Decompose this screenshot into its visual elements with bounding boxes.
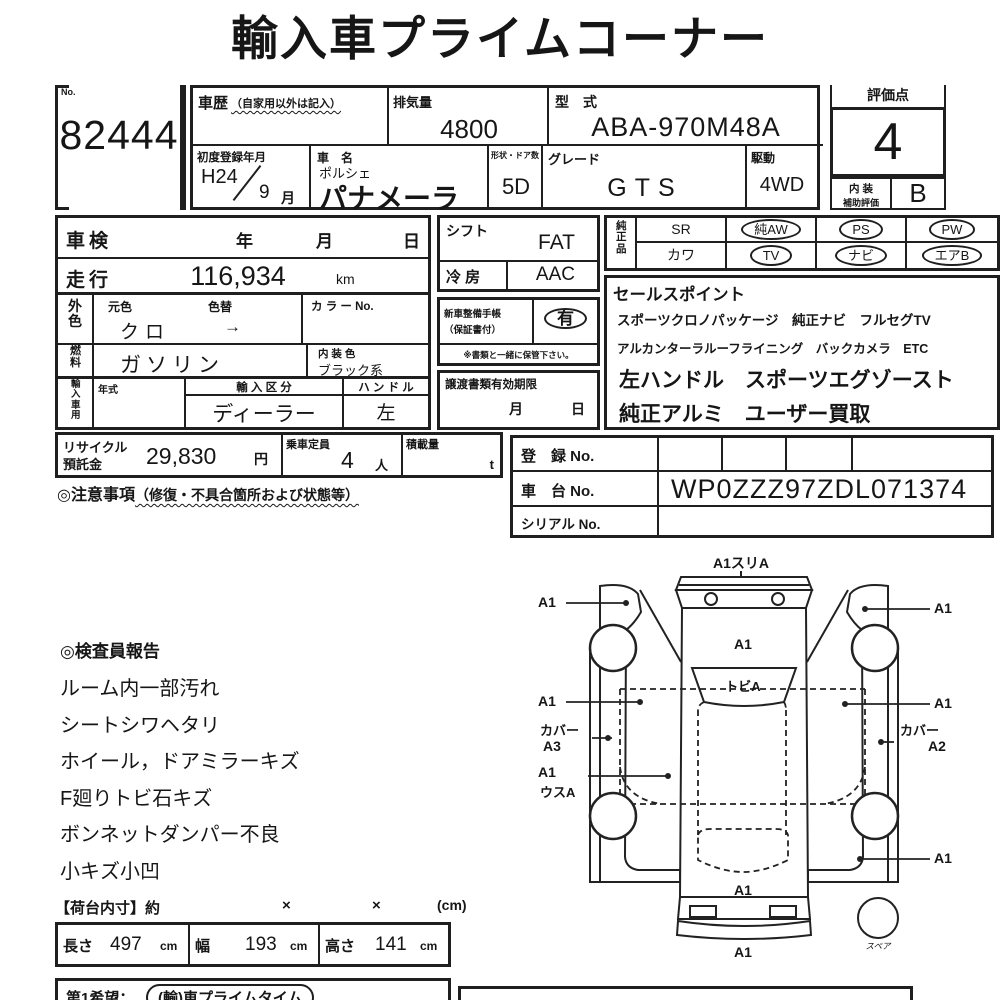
genuine-navi: ナビ: [835, 245, 887, 266]
body-right-edge: [806, 608, 808, 897]
cargo-length-unit: cm: [160, 939, 177, 953]
wheels: [590, 625, 898, 839]
service-book-note: ※書類と一緒に保管下さい。: [440, 343, 597, 363]
cargo-width-unit: cm: [290, 939, 307, 953]
ext-color-row: 外色 元色 色替 クロ → カ ラ ー No.: [58, 295, 428, 345]
shift-label: シフト: [446, 221, 488, 241]
chassis-no-label: 車 台 No.: [513, 472, 659, 505]
diagram-left-rear-code: ウスA: [540, 782, 575, 801]
cargo-width-label: 幅: [195, 935, 210, 956]
cargo-height-cell: 高さ 141 cm: [320, 925, 448, 964]
diagram-hood-label: A1: [713, 636, 773, 652]
cargo-width-cell: 幅 193 cm: [190, 925, 320, 964]
drive-value: 4WD: [747, 174, 817, 197]
reg-no-divider-1: [721, 438, 723, 470]
report-item-4: F廻りトビ石キズ: [60, 782, 212, 811]
wish-label: 第1希望：: [66, 987, 134, 1000]
lot-no-label: No.: [61, 87, 76, 97]
base-color-label: 元色: [108, 298, 132, 315]
history-cell: 車歴 （自家用以外は記入）: [193, 88, 389, 146]
handle-cell: ハ ン ド ル 左: [344, 379, 428, 427]
diagram-left-door-label: A1: [538, 693, 556, 709]
recycle-row: リサイクル 預託金 29,830 円 乗車定員 4 人 積載量 t: [55, 432, 503, 478]
rating-label: 評価点: [867, 87, 909, 103]
cargo-width-value: 193: [245, 934, 277, 956]
front-bumper: [676, 577, 812, 590]
spare-wheel: [858, 898, 898, 938]
capacity-cell: 乗車定員 4 人: [283, 435, 403, 475]
load-unit: t: [490, 457, 494, 472]
serial-no-row: シリアル No.: [513, 507, 991, 536]
rating-score-box: 4: [830, 107, 946, 177]
grade-cell: グレード GTS: [543, 146, 747, 210]
cargo-x1: ×: [282, 897, 291, 914]
diagram-spare-label: スペア: [855, 940, 901, 952]
left-middle-table: 車検 年 月 日 走行 116,934 km 外色 元色 色替 クロ → カ ラ…: [55, 215, 431, 430]
ext-color-vlabel: 外色: [58, 295, 94, 345]
sales-point-line-2: アルカンターラルーフライニング バックカメラ ETC: [617, 338, 928, 357]
report-item-5: ボンネットダンパー不良: [60, 818, 280, 847]
color-no-cell: カ ラ ー No.: [301, 295, 428, 345]
displacement-cell: 排気量 4800: [389, 88, 549, 146]
transfer-docs-box: 譲渡書類有効期限 月 日: [437, 370, 600, 430]
transfer-day: 日: [571, 399, 585, 419]
wish-box: 第1希望： (輸)車プライムタイム: [55, 978, 451, 1000]
cargo-table: 長さ 497 cm 幅 193 cm 高さ 141 cm: [55, 922, 451, 967]
car-name-cell: 車 名 ポルシェ パナメーラ: [311, 146, 489, 210]
fuel-row: 燃料 ガソリン 内 装 色 ブラック系: [58, 345, 428, 379]
report-item-3: ホイール，ドアミラーキズ: [60, 745, 300, 774]
displacement-label: 排気量: [393, 92, 432, 111]
capacity-value: 4: [341, 447, 354, 474]
front-cowl: [676, 590, 812, 608]
diagram-right-cover-code: A2: [928, 738, 946, 754]
caution-heading: ◎注意事項: [57, 487, 135, 504]
import-class-cell: 輸 入 区 分 ディーラー: [186, 379, 344, 427]
genuine-cell-tv: TV: [727, 243, 817, 268]
shaken-year: 年: [236, 227, 253, 252]
grade-value: GTS: [543, 174, 747, 203]
sales-point-line-3: 左ハンドル スポーツエグゾースト: [619, 364, 954, 394]
lot-number: 82444: [58, 112, 180, 159]
chassis-no-value: WP0ZZZ97ZDL071374: [671, 474, 967, 505]
car-diagram-svg: [528, 552, 1000, 967]
rear-bumper: [678, 897, 810, 919]
base-color-value: クロ: [120, 317, 170, 344]
genuine-cell-aw: 純AW: [727, 218, 817, 243]
recycle-value: 29,830: [146, 443, 216, 470]
drive-cell: 駆動 4WD: [747, 146, 817, 210]
interior-rating-label-cell: 内 装 補助評価: [830, 177, 892, 210]
genuine-cell-pw: PW: [907, 218, 997, 243]
caution-heading-row: ◎注意事項（修復・不具合箇所および状態等）: [57, 481, 359, 505]
diagram-left-cover-code: A3: [543, 738, 561, 754]
mileage-row: 走行 116,934 km: [58, 259, 428, 295]
lot-bracket-bottom: [55, 207, 69, 210]
repaint-value: →: [224, 317, 241, 337]
import-class-label: 輸 入 区 分: [186, 379, 342, 396]
report-item-2: シートシワヘタリ: [60, 709, 220, 738]
genuine-cell-airbag: エアB: [907, 243, 997, 268]
service-book-label-cell: 新車整備手帳 （保証書付）: [440, 300, 534, 343]
interior-rating-label-2: 補助評価: [832, 196, 890, 209]
shape-label: 形状・ドア数: [491, 150, 539, 161]
service-book-value-cell: 有: [534, 300, 597, 343]
diagram-trunk-label: A1: [713, 882, 773, 898]
car-name-value: パナメーラ: [319, 177, 459, 217]
import-class-value: ディーラー: [186, 398, 342, 428]
shape-value: 5D: [489, 174, 543, 200]
page-title: 輸入車プライムコーナー: [0, 0, 1000, 69]
diagram-right-door-label: A1: [934, 695, 952, 711]
cargo-heading: 【荷台内寸】約: [55, 897, 160, 918]
bottom-right-box: [458, 986, 913, 1000]
genuine-cell-navi: ナビ: [817, 243, 907, 268]
diagram-right-rear-label: A1: [934, 850, 952, 866]
interior-rating-value-cell: B: [890, 177, 946, 210]
load-cell: 積載量 t: [403, 435, 500, 475]
cargo-height-label: 高さ: [325, 935, 355, 956]
recycle-label-2: 預託金: [63, 454, 102, 473]
service-book-box: 新車整備手帳 （保証書付） 有 ※書類と一緒に保管下さい。: [437, 297, 600, 366]
shaken-row: 車検 年 月 日: [58, 218, 428, 259]
cargo-unit-note: (cm): [437, 897, 467, 913]
cargo-length-value: 497: [110, 934, 142, 956]
import-row: 輸入車用 年式 輸 入 区 分 ディーラー ハ ン ド ル 左: [58, 379, 428, 427]
model-code-cell: 型 式 ABA-970M48A: [549, 88, 823, 146]
color-no-label: カ ラ ー No.: [311, 298, 374, 314]
shift-row: シフト FAT: [440, 218, 597, 262]
first-reg-month: 9: [259, 182, 270, 204]
mileage-label: 走行: [66, 265, 112, 292]
diagram-left-rear-label: A1: [538, 764, 556, 780]
genuine-cell-ps: PS: [817, 218, 907, 243]
diagram-front-label: A1スリA: [696, 553, 786, 573]
shaken-label: 車検: [66, 226, 112, 253]
history-note: （自家用以外は記入）: [231, 95, 341, 111]
serial-no-label: シリアル No.: [513, 507, 659, 535]
diagram-left-front-label: A1: [538, 594, 556, 610]
rating-label-row: 評価点: [830, 85, 946, 107]
genuine-tv: TV: [750, 245, 793, 266]
interior-color-label: 内 装 色: [318, 346, 355, 361]
diagram-right-cover-label: カバー: [900, 720, 939, 739]
diagram-right-front-label: A1: [934, 600, 952, 616]
shift-value: FAT: [538, 231, 575, 255]
car-diagram: A1スリA A1 A1 A1 トビA A1 A1 カバー A3 カバー A2 A…: [528, 552, 1000, 967]
transfer-month: 月: [509, 399, 523, 419]
cargo-length-cell: 長さ 497 cm: [58, 925, 190, 964]
interior-color-cell: 内 装 色 ブラック系: [306, 345, 428, 379]
cargo-height-unit: cm: [420, 939, 437, 953]
transfer-docs-label: 譲渡書類有効期限: [445, 376, 537, 392]
load-label: 積載量: [406, 436, 439, 452]
fuel-vlabel: 燃料: [58, 345, 94, 379]
interior-rating-label-1: 内 装: [832, 181, 890, 196]
sales-point-line-1: スポーツクロノパッケージ 純正ナビ フルセグTV: [617, 309, 931, 329]
genuine-ps: PS: [839, 219, 882, 240]
body-left-edge: [680, 608, 682, 897]
repaint-label: 色替: [208, 298, 232, 315]
handle-label: ハ ン ド ル: [344, 379, 428, 396]
interior-rating-value: B: [909, 178, 926, 208]
service-book-label-2: （保証書付）: [444, 322, 501, 336]
model-year-cell: 年式: [94, 379, 186, 427]
left-rocker-strip: [590, 647, 600, 882]
ac-value: AAC: [536, 264, 575, 286]
report-item-6: 小キズ小凹: [60, 855, 160, 884]
genuine-sr: SR: [671, 221, 690, 237]
handle-value: 左: [344, 398, 428, 425]
capacity-unit: 人: [375, 455, 388, 474]
report-item-1: ルーム内一部汚れ: [60, 672, 219, 701]
cargo-heading-row: 【荷台内寸】約 × × (cm): [55, 897, 455, 919]
sales-points-label: セールスポイント: [613, 281, 745, 305]
service-book-value: 有: [544, 308, 587, 329]
history-label: 車歴: [198, 92, 228, 113]
cargo-length-label: 長さ: [63, 935, 93, 956]
top-spec-table: 車歴 （自家用以外は記入） 排気量 4800 型 式 ABA-970M48A 初…: [190, 85, 820, 210]
model-code-value: ABA-970M48A: [549, 112, 823, 143]
reg-no-divider-2: [785, 438, 787, 470]
recycle-unit: 円: [254, 449, 268, 469]
reg-no-label: 登 録 No.: [513, 438, 659, 470]
report-heading: ◎検査員報告: [60, 637, 160, 662]
drive-label: 駆動: [751, 149, 775, 166]
interior-color-value: ブラック系: [318, 360, 383, 379]
diagram-windshield-label: トビA: [708, 676, 778, 695]
first-reg-label: 初度登録年月: [197, 149, 266, 165]
rating-score: 4: [874, 113, 903, 171]
ac-row: 冷 房 AAC: [440, 262, 597, 289]
mileage-value: 116,934: [148, 261, 328, 292]
model-code-label: 型 式: [555, 92, 597, 112]
unfold-dashed-lines: [620, 689, 865, 872]
genuine-airbag: エアB: [922, 245, 983, 266]
genuine-parts-box: 純正品 SR 純AW PS PW カワ TV ナビ エアB: [604, 215, 1000, 271]
reg-no-divider-3: [851, 438, 853, 470]
rear-bumper-lip: [677, 921, 811, 939]
shift-box: シフト FAT 冷 房 AAC: [437, 215, 600, 292]
auction-sheet: 輸入車プライムコーナー No. 82444 車歴 （自家用以外は記入） 排気量 …: [0, 0, 1000, 1000]
first-reg-year: H24: [201, 166, 238, 189]
genuine-cell-sr: SR: [637, 218, 727, 243]
mileage-unit: km: [336, 271, 355, 287]
wish-value: (輸)車プライムタイム: [146, 984, 314, 1000]
genuine-pw: PW: [929, 219, 976, 240]
recycle-cell: リサイクル 預託金 29,830 円: [58, 435, 283, 475]
genuine-vlabel: 純正品: [607, 218, 637, 268]
displacement-value: 4800: [389, 114, 549, 145]
import-vlabel: 輸入車用: [58, 379, 94, 427]
cargo-x2: ×: [372, 897, 381, 914]
genuine-aw: 純AW: [741, 219, 800, 240]
genuine-cell-kawa: カワ: [637, 243, 727, 268]
first-reg-month-unit: 月: [281, 188, 295, 208]
sales-point-line-4: 純正アルミ ユーザー買取: [619, 398, 870, 428]
reg-no-row: 登 録 No.: [513, 438, 991, 472]
lot-divider-bar: [180, 85, 186, 210]
shaken-day: 日: [403, 227, 420, 252]
chassis-no-row: 車 台 No. WP0ZZZ97ZDL071374: [513, 472, 991, 507]
diagram-rear-label: A1: [713, 944, 773, 960]
first-reg-cell: 初度登録年月 H24 9 月: [193, 146, 311, 210]
genuine-kawa: カワ: [667, 247, 695, 263]
rating-box: 評価点 4 内 装 補助評価 B: [830, 85, 946, 210]
shape-cell: 形状・ドア数 5D: [489, 146, 543, 210]
diagram-left-cover-label: カバー: [540, 720, 579, 739]
cargo-height-value: 141: [375, 934, 407, 956]
capacity-label: 乗車定員: [286, 436, 330, 452]
sales-points-box: セールスポイント スポーツクロノパッケージ 純正ナビ フルセグTV アルカンター…: [604, 275, 1000, 430]
caution-heading-note: （修復・不具合箇所および状態等）: [135, 487, 359, 503]
right-rocker-strip: [888, 647, 898, 882]
fuel-value: ガソリン: [120, 349, 224, 379]
service-book-label-1: 新車整備手帳: [444, 306, 501, 320]
ac-label: 冷 房: [440, 262, 508, 289]
registration-block: 登 録 No. 車 台 No. WP0ZZZ97ZDL071374 シリアル N…: [510, 435, 994, 538]
model-year-label: 年式: [98, 381, 118, 396]
grade-label: グレード: [548, 149, 600, 168]
shaken-month: 月: [316, 227, 333, 252]
